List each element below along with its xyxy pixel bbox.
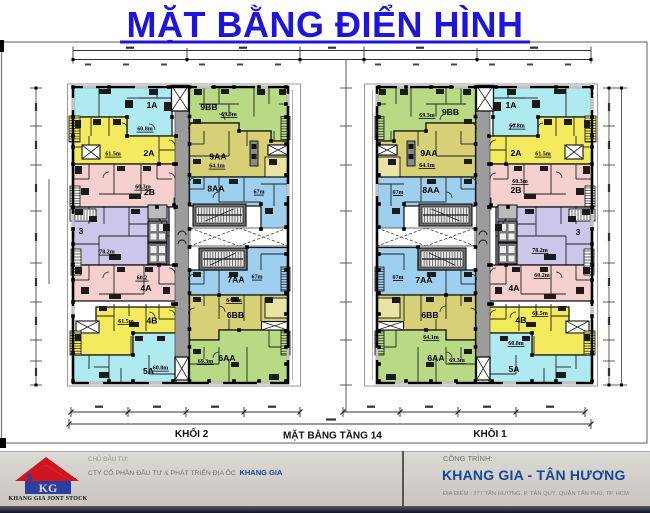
svg-text:64.1m: 64.1m: [419, 163, 435, 169]
svg-text:2B: 2B: [511, 185, 522, 195]
svg-text:60.8m: 60.8m: [137, 127, 153, 133]
svg-text:9AA: 9AA: [209, 152, 226, 162]
svg-text:7AA: 7AA: [415, 275, 432, 285]
svg-text:61.5m: 61.5m: [105, 152, 121, 158]
svg-text:67m: 67m: [252, 275, 263, 281]
svg-text:69.3m: 69.3m: [198, 359, 214, 365]
svg-text:61.5m: 61.5m: [532, 311, 548, 317]
svg-text:2A: 2A: [511, 148, 522, 158]
svg-text:60.8m: 60.8m: [508, 341, 524, 347]
svg-text:60.3m: 60.3m: [135, 185, 151, 191]
svg-text:6AA: 6AA: [427, 353, 444, 363]
svg-text:3: 3: [79, 226, 84, 236]
svg-text:9AA: 9AA: [420, 148, 437, 158]
svg-text:4A: 4A: [509, 283, 520, 293]
svg-text:8AA: 8AA: [422, 185, 439, 195]
svg-text:1A: 1A: [506, 100, 517, 110]
svg-text:2A: 2A: [144, 148, 155, 158]
svg-text:69.3m: 69.3m: [221, 112, 237, 118]
svg-text:78.2m: 78.2m: [532, 248, 548, 254]
svg-text:60.2m: 60.2m: [534, 273, 550, 279]
svg-text:64.1m: 64.1m: [226, 298, 242, 304]
svg-text:67m: 67m: [254, 190, 265, 196]
svg-text:7AA: 7AA: [227, 275, 244, 285]
svg-text:67m: 67m: [393, 275, 404, 281]
svg-text:64.1m: 64.1m: [423, 335, 439, 341]
svg-text:MẶT BẰNG TẦNG 14: MẶT BẰNG TẦNG 14: [283, 429, 382, 442]
svg-text:3: 3: [576, 227, 581, 237]
svg-text:69.3m: 69.3m: [419, 113, 435, 119]
svg-text:4B: 4B: [516, 315, 527, 325]
svg-text:60.3m: 60.3m: [512, 179, 528, 185]
svg-text:MẶT BẰNG ĐIỂN HÌNH: MẶT BẰNG ĐIỂN HÌNH: [127, 3, 524, 45]
svg-text:60.8m: 60.8m: [509, 124, 525, 130]
svg-text:KHỒI 1: KHỒI 1: [473, 427, 507, 440]
svg-text:9BB: 9BB: [200, 102, 217, 112]
svg-text:61.5m: 61.5m: [118, 319, 134, 325]
svg-text:61.5m: 61.5m: [535, 152, 551, 158]
svg-text:6BB: 6BB: [421, 310, 438, 320]
svg-text:6AA: 6AA: [218, 353, 235, 363]
svg-text:4B: 4B: [147, 316, 158, 326]
svg-text:5A: 5A: [509, 364, 520, 374]
svg-text:KG: KG: [39, 481, 58, 495]
svg-text:8AA: 8AA: [207, 184, 224, 194]
svg-text:KHANG GIA JONT STOCK: KHANG GIA JONT STOCK: [9, 496, 88, 502]
svg-text:KHỐI 2: KHỐI 2: [175, 426, 209, 440]
svg-text:67m: 67m: [393, 190, 404, 196]
svg-text:1A: 1A: [147, 100, 158, 110]
svg-text:69.3m: 69.3m: [449, 358, 465, 364]
svg-text:64.1m: 64.1m: [209, 164, 225, 170]
svg-text:78.2m: 78.2m: [99, 250, 115, 256]
svg-text:6BB: 6BB: [227, 310, 244, 320]
svg-text:9BB: 9BB: [442, 107, 459, 117]
svg-text:60.2: 60.2: [137, 276, 148, 282]
svg-text:4A: 4A: [141, 283, 152, 293]
svg-text:60.8m: 60.8m: [153, 366, 169, 372]
